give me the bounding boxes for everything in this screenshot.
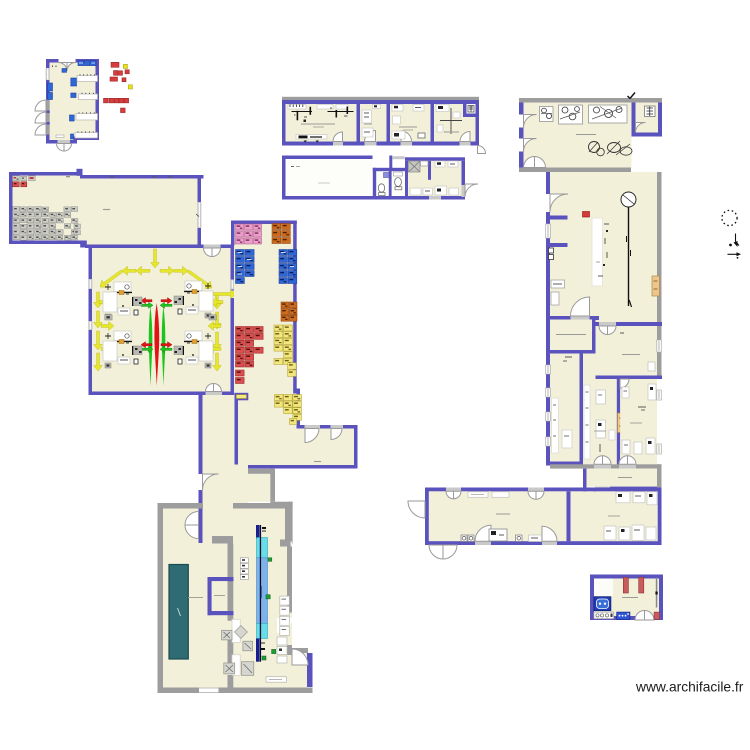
svg-text:www.archifacile.fr: www.archifacile.fr <box>635 680 744 695</box>
